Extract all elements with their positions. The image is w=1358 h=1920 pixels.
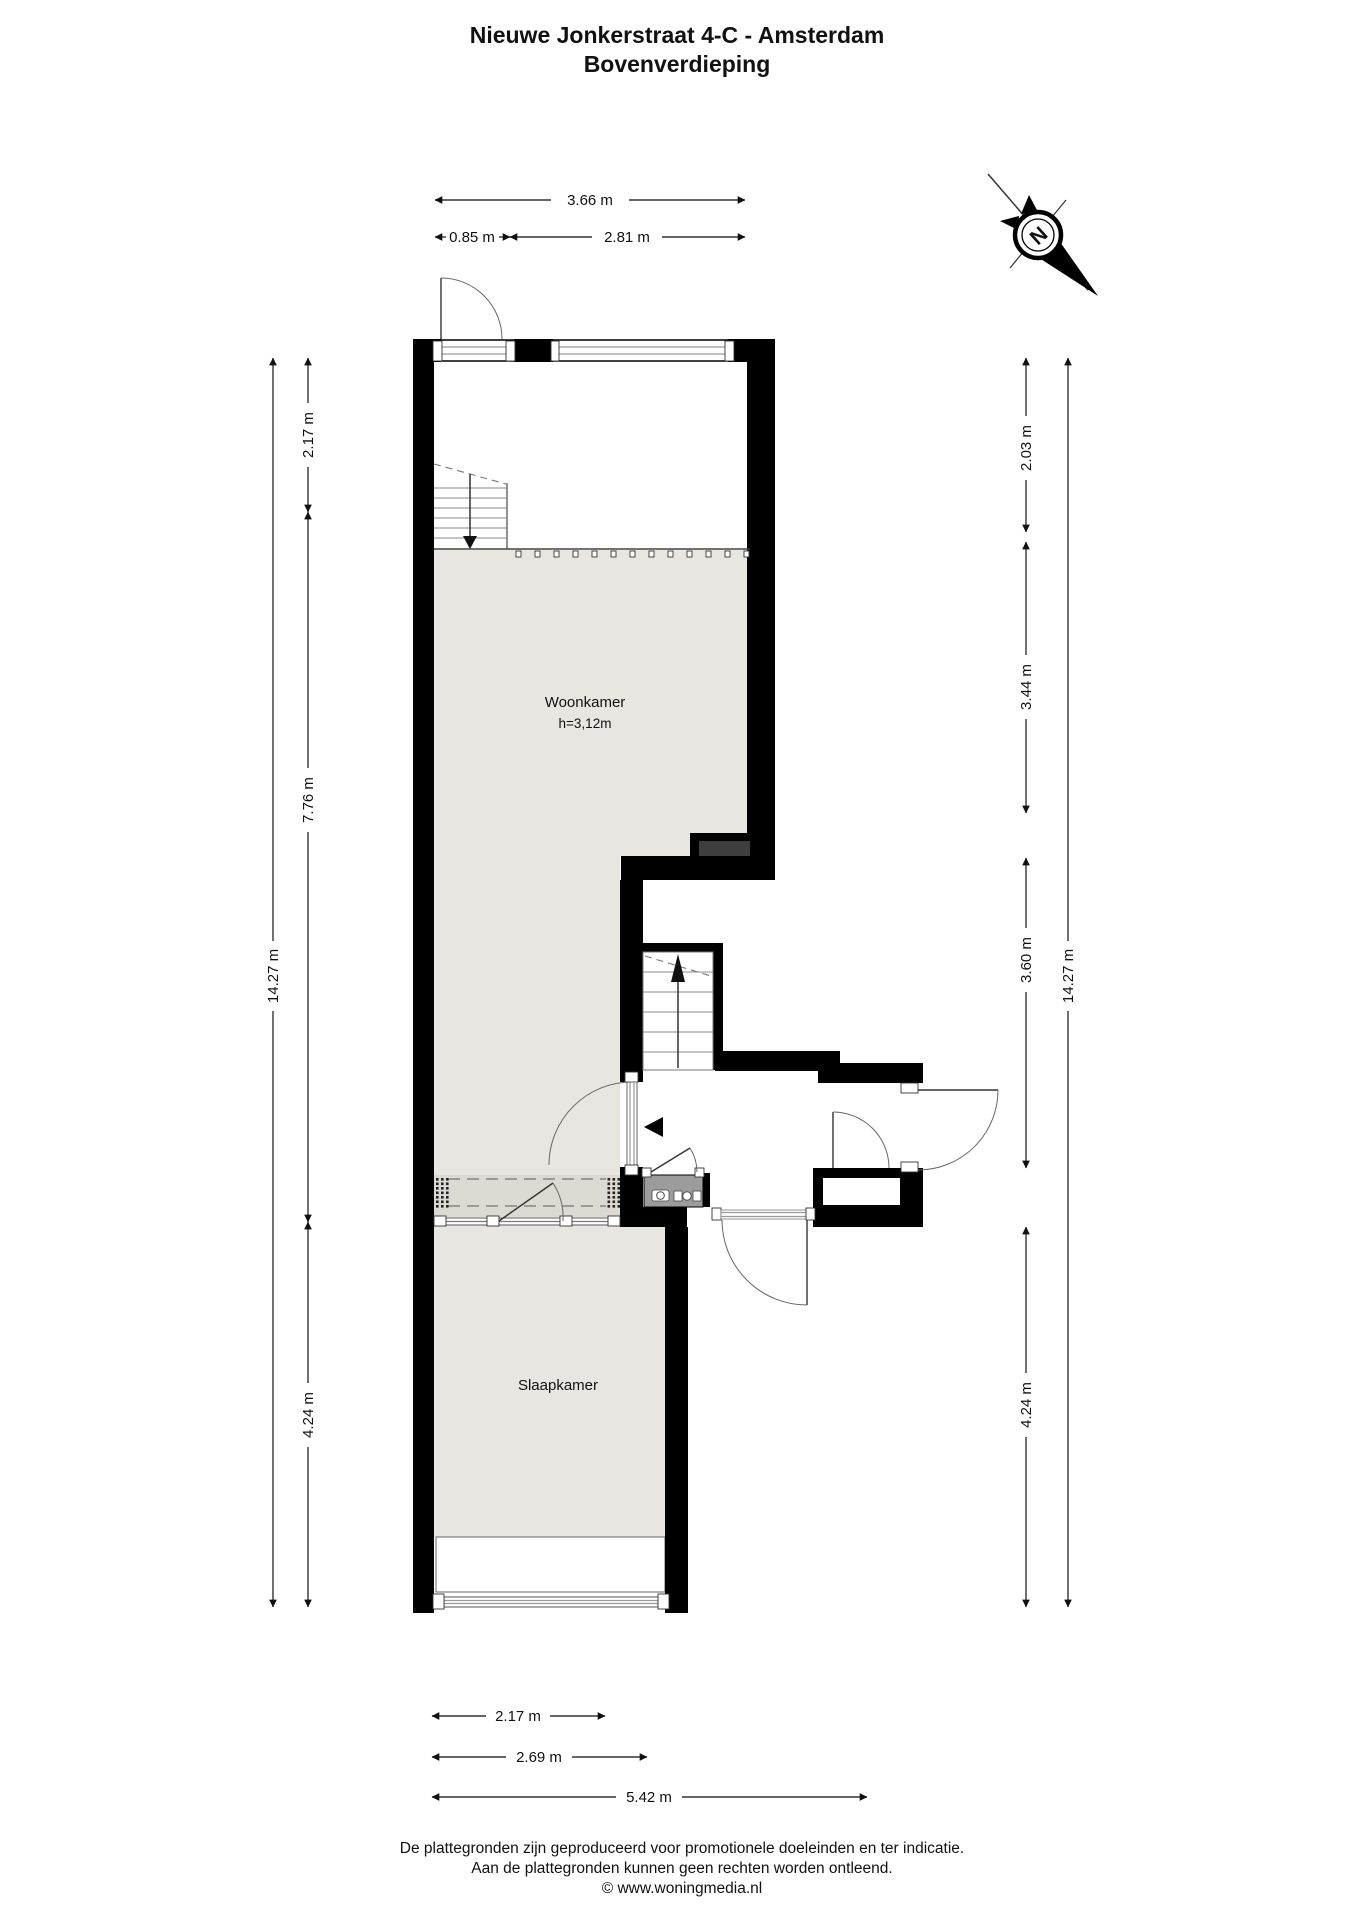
stairs-down-arrow <box>463 536 477 549</box>
hall-east-door <box>901 1083 998 1172</box>
dim-left-seg1: 2.17 m <box>300 358 317 512</box>
dim-left-seg2: 7.76 m <box>300 512 317 1222</box>
hob-icon <box>674 1191 682 1201</box>
staircase-down <box>434 464 507 549</box>
hall-south-door <box>833 1112 889 1168</box>
dimensions-bottom: 2.17 m 2.69 m 5.42 m <box>432 1708 867 1806</box>
window-top-left <box>441 339 514 362</box>
dim-bottom-1: 2.17 m <box>432 1708 605 1725</box>
svg-text:14.27 m: 14.27 m <box>265 949 282 1003</box>
dim-bottom-3: 5.42 m <box>432 1789 867 1806</box>
left-exterior-wall <box>413 362 434 1613</box>
woonkamer-label: Woonkamer <box>545 694 626 711</box>
dim-right-seg3: 3.60 m <box>1018 858 1035 1168</box>
kitchenette <box>642 1148 704 1207</box>
woonkamer-height-label: h=3,12m <box>559 716 612 731</box>
south-doorway-recess <box>823 1178 900 1205</box>
dimensions-top: 3.66 m 0.85 m 2.81 m <box>435 192 745 246</box>
svg-text:2.17 m: 2.17 m <box>495 1708 541 1725</box>
svg-text:5.42 m: 5.42 m <box>626 1789 672 1806</box>
dim-top-total: 3.66 m <box>435 192 745 209</box>
floorplan-page: { "header": { "title_line1": "Nieuwe Jon… <box>0 0 1358 1920</box>
slaapkamer-label: Slaapkamer <box>518 1377 598 1394</box>
svg-text:3.44 m: 3.44 m <box>1018 664 1035 710</box>
window-top-right <box>553 339 728 362</box>
bottom-window <box>433 1594 669 1609</box>
dim-bottom-2: 2.69 m <box>432 1749 647 1766</box>
svg-text:3.60 m: 3.60 m <box>1018 937 1035 983</box>
svg-text:7.76 m: 7.76 m <box>300 777 317 823</box>
chimney-shaft <box>699 841 750 857</box>
svg-text:0.85 m: 0.85 m <box>449 229 495 246</box>
dim-right-seg4: 4.24 m <box>1018 1227 1035 1607</box>
svg-text:4.24 m: 4.24 m <box>300 1392 317 1438</box>
svg-text:3.66 m: 3.66 m <box>567 192 613 209</box>
floor-plan-canvas: Nieuwe Jonkerstraat 4-C - Amsterdam Bove… <box>0 0 1358 1920</box>
footer-line2: Aan de plattegronden kunnen geen rechten… <box>471 1860 892 1877</box>
dim-left-seg3: 4.24 m <box>300 1222 317 1607</box>
dim-right-seg1: 2.03 m <box>1018 358 1035 532</box>
north-compass: N <box>988 174 1098 296</box>
footer-disclaimer: De plattegronden zijn geproduceerd voor … <box>400 1840 964 1897</box>
svg-text:4.24 m: 4.24 m <box>1018 1382 1035 1428</box>
bay-strip <box>436 1537 665 1592</box>
dimensions-right: 2.03 m 3.44 m 3.60 m 4.24 m 14.27 m <box>1018 358 1077 1607</box>
staircase-up <box>643 952 713 1070</box>
entrance-arrow <box>644 1117 663 1137</box>
footer-line1: De plattegronden zijn geproduceerd voor … <box>400 1840 964 1857</box>
terrace-door <box>712 1208 815 1305</box>
page-title: Nieuwe Jonkerstraat 4-C - Amsterdam Bove… <box>470 22 885 77</box>
svg-text:2.81 m: 2.81 m <box>604 229 650 246</box>
svg-text:2.17 m: 2.17 m <box>300 412 317 458</box>
partition-band <box>434 1175 620 1217</box>
dim-top-right: 2.81 m <box>510 229 745 246</box>
svg-text:2.03 m: 2.03 m <box>1018 425 1035 471</box>
title-line2: Bovenverdieping <box>584 51 771 77</box>
balcony-door <box>441 278 502 339</box>
dim-left-outer: 14.27 m <box>265 358 282 1607</box>
footer-copyright: © www.woningmedia.nl <box>602 1880 762 1897</box>
top-windows <box>433 339 734 362</box>
svg-text:2.69 m: 2.69 m <box>516 1749 562 1766</box>
title-line1: Nieuwe Jonkerstraat 4-C - Amsterdam <box>470 22 885 48</box>
woonkamer-floor <box>434 550 747 833</box>
dim-right-seg2: 3.44 m <box>1018 542 1035 813</box>
right-exterior-wall <box>747 362 775 880</box>
dim-right-outer: 14.27 m <box>1060 358 1077 1607</box>
dim-top-left: 0.85 m <box>435 229 510 246</box>
slaapkamer-right-wall <box>665 1227 688 1613</box>
svg-text:14.27 m: 14.27 m <box>1060 949 1077 1003</box>
dimensions-left: 2.17 m 7.76 m 4.24 m 14.27 m <box>265 358 317 1607</box>
